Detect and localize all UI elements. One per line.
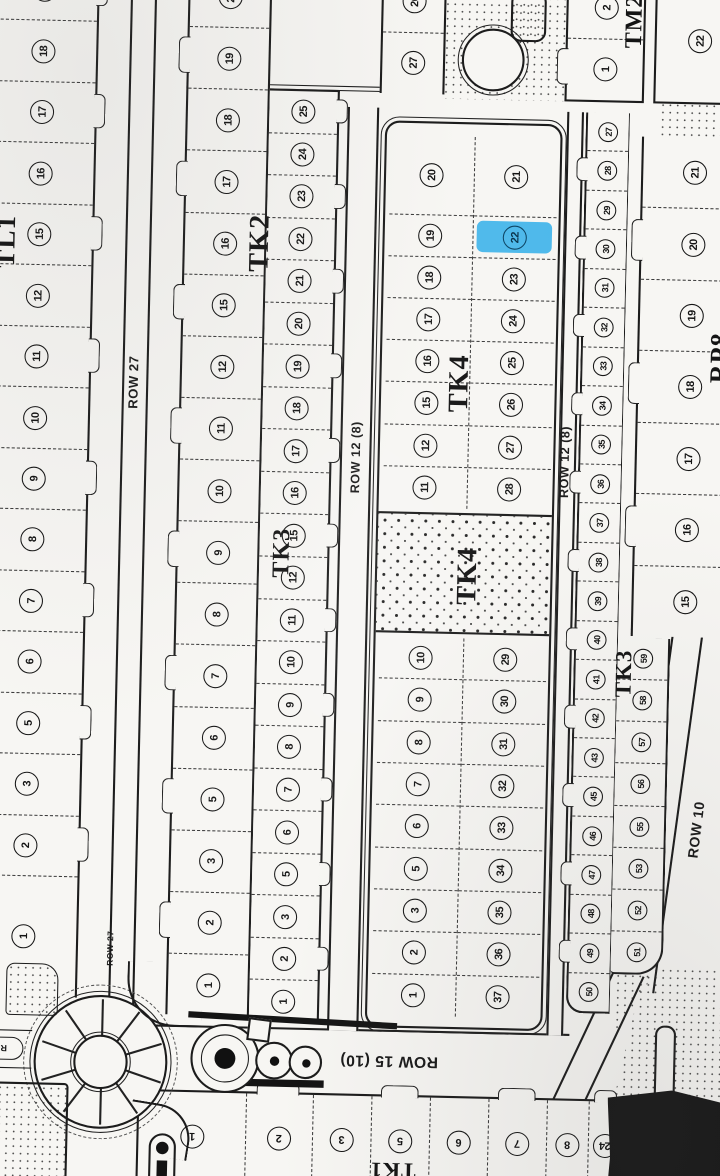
lot-cell[interactable]: 12 <box>0 263 91 327</box>
lot-number: 11 <box>412 475 437 500</box>
lot-number: 18 <box>284 396 309 421</box>
lot-number: 39 <box>587 591 607 611</box>
lot-cell[interactable]: 37 <box>578 502 620 542</box>
lot-number: 57 <box>631 732 651 752</box>
block-label-tm2: TM2 <box>620 0 648 49</box>
lot-number: 9 <box>278 693 303 718</box>
lot-number: 28 <box>597 161 617 181</box>
lot-number: 10 <box>207 479 232 504</box>
lot-cell[interactable]: 9 <box>177 520 258 584</box>
lot-cell[interactable]: 1 <box>371 973 455 1017</box>
lot-cell[interactable]: 21 <box>474 137 559 217</box>
lot-number: 19 <box>32 0 57 2</box>
tank-core <box>270 1056 280 1066</box>
lot-number: 45 <box>583 787 603 807</box>
lot-number: 29 <box>493 648 518 673</box>
tank-core <box>302 1059 311 1068</box>
lot-number: 17 <box>214 170 239 195</box>
screenshot-canvas: 191817161512111098765321 201918171615121… <box>0 0 720 1176</box>
lot-number: 3 <box>329 1127 354 1152</box>
lot-cell[interactable]: 17 <box>186 150 267 214</box>
lot-cell[interactable]: 20 <box>641 207 720 281</box>
lot-cell[interactable]: 7 <box>376 762 460 806</box>
lot-number: 6 <box>446 1130 471 1155</box>
lot-number: 37 <box>589 513 609 533</box>
lot-number: 19 <box>679 304 704 329</box>
lot-cell[interactable]: 5 <box>0 691 82 755</box>
tk4-bottom-right-column: 293031323334353637 <box>454 638 547 1018</box>
lot-cell[interactable]: 19 <box>263 344 332 388</box>
road-label-row15: ROW 15 (10) <box>340 1051 438 1071</box>
lot-number: 7 <box>203 664 228 689</box>
road-label-row10: ROW 10 <box>685 800 708 859</box>
lot-number: 16 <box>282 481 307 506</box>
lot-cell[interactable]: 7 <box>486 1099 546 1176</box>
lot-cell[interactable]: 3 <box>311 1095 371 1176</box>
lot-number: 9 <box>205 540 230 565</box>
lot-cell[interactable]: 3 <box>373 888 457 932</box>
block-label-tk2: TK2 <box>242 213 276 272</box>
lot-cell[interactable]: 32 <box>460 764 544 808</box>
block-label-tk3-east: TK3 <box>609 649 637 697</box>
lot-number: 33 <box>593 356 613 376</box>
lot-number: 19 <box>418 223 443 248</box>
lot-cell[interactable]: 19 <box>388 213 472 257</box>
lot-number: 1 <box>196 973 221 998</box>
lot-number: 36 <box>486 943 511 968</box>
lot-cell[interactable]: 25 <box>269 90 338 133</box>
lot-number: 2 <box>13 833 38 858</box>
lot-number: 7 <box>18 589 43 614</box>
lot-number: 19 <box>217 46 242 71</box>
lot-number: 15 <box>26 222 51 247</box>
lot-number: 16 <box>28 161 53 186</box>
lot-cell[interactable]: 53 <box>612 846 663 889</box>
scan-dark-edge <box>605 1089 720 1176</box>
lot-number: 10 <box>22 405 47 430</box>
lot-number: 26 <box>498 393 523 418</box>
row2-road-line <box>0 1029 32 1031</box>
lot-cell[interactable]: 3 <box>170 829 251 893</box>
lot-number: 32 <box>490 774 515 799</box>
tk4-bottom-left-column: 1098765321 <box>371 637 463 1017</box>
lot-cell[interactable]: 2 <box>0 813 79 877</box>
lot-number: 30 <box>492 690 517 715</box>
lot-number: 10 <box>409 646 434 671</box>
obelisk-mark <box>156 1160 167 1176</box>
lot-cell[interactable]: 27 <box>468 425 552 469</box>
lot-cell[interactable]: 15 <box>183 273 264 337</box>
block-label-tk3-west: TK3 <box>267 528 295 578</box>
lot-number: 30 <box>595 239 615 259</box>
lot-cell[interactable]: 21 <box>643 137 720 210</box>
lot-number: 36 <box>590 474 610 494</box>
lot-number: 8 <box>277 735 302 760</box>
lot-number: 8 <box>20 527 45 552</box>
lot-number: 40 <box>586 630 606 650</box>
block-label-tk4-reserve: TK4 <box>450 546 484 605</box>
lot-number: 17 <box>676 447 701 472</box>
lot-cell[interactable]: 27 <box>587 112 629 151</box>
lot-cell[interactable]: 35 <box>580 424 622 464</box>
lot-number: 27 <box>498 435 523 460</box>
lot-number: 20 <box>286 311 311 336</box>
lot-number: 23 <box>501 267 526 292</box>
lot-cell[interactable]: 10 <box>0 385 89 449</box>
lot-number: 33 <box>489 816 514 841</box>
lot-number: 55 <box>629 816 649 836</box>
lot-number: 3 <box>14 772 39 797</box>
lot-cell[interactable]: 43 <box>573 737 615 777</box>
lot-number: 18 <box>31 39 56 64</box>
road-label-row27: ROW 27 <box>126 355 142 409</box>
lot-cell[interactable]: 8 <box>255 725 324 769</box>
lot-number: 15 <box>414 391 439 416</box>
lot-cell[interactable]: 18 <box>388 255 472 299</box>
lot-cell[interactable]: 50 <box>568 972 610 1012</box>
road-label-row27-small: ROW 27 <box>105 930 115 965</box>
lot-number: 6 <box>275 820 300 845</box>
lot-number: 29 <box>596 200 616 220</box>
lot-cell[interactable]: 17 <box>0 80 96 144</box>
lot-cell[interactable]: 31 <box>461 722 545 766</box>
lot-cell[interactable]: 10 <box>179 458 260 522</box>
lot-cell[interactable]: 23 <box>267 174 336 218</box>
lot-cell[interactable]: 20 <box>264 301 333 345</box>
lot-number: 1 <box>401 983 426 1008</box>
lot-cell[interactable]: 30 <box>462 680 546 724</box>
lot-number: 37 <box>485 985 510 1010</box>
lot-cell[interactable]: 7 <box>174 644 255 708</box>
lot-number: 25 <box>499 351 524 376</box>
culdesac-island <box>510 0 547 42</box>
lot-cell[interactable]: 47 <box>570 854 612 894</box>
lot-cell[interactable]: 3 <box>0 752 80 816</box>
lot-cell[interactable]: 52 <box>611 888 662 931</box>
lot-cell[interactable]: 3 <box>251 894 320 938</box>
lot-cell[interactable]: 48 <box>570 894 612 934</box>
lot-cell[interactable]: 34 <box>458 848 542 892</box>
lot-cell[interactable]: 18 <box>0 19 97 83</box>
lot-number: 6 <box>17 650 42 675</box>
lot-number: 1 <box>11 924 36 949</box>
lot-cell[interactable]: 9 <box>378 678 462 722</box>
lot-number: 18 <box>417 265 442 290</box>
lot-number: 20 <box>681 232 706 257</box>
lot-cell[interactable]: 9 <box>256 683 325 727</box>
lot-number: 5 <box>15 711 40 736</box>
lot-number: 15 <box>211 293 236 318</box>
lot-cell[interactable]: 6 <box>253 810 322 854</box>
lot-number: 8 <box>204 602 229 627</box>
lot-number: 28 <box>497 477 522 502</box>
lot-number: 17 <box>416 307 441 332</box>
lot-cell[interactable]: 5 <box>172 767 253 831</box>
lot-number: 8 <box>407 730 432 755</box>
lot-number: 7 <box>406 772 431 797</box>
lot-cell[interactable]: 15 <box>633 564 720 638</box>
lot-cell[interactable]: 36 <box>456 932 540 976</box>
lot-cell[interactable]: 57 <box>615 721 666 764</box>
lot-cell[interactable]: 39 <box>577 581 619 621</box>
lot-cell[interactable]: 8 <box>545 1100 589 1176</box>
tank-structure-small-1 <box>255 1041 293 1079</box>
lot-number: 21 <box>287 269 312 294</box>
lot-cell[interactable]: 23 <box>472 257 556 301</box>
lot-number: 56 <box>630 774 650 794</box>
lot-number: 18 <box>215 108 240 133</box>
lot-cell[interactable]: 28 <box>586 150 628 190</box>
lot-cell[interactable]: 56 <box>614 762 665 805</box>
lot-cell[interactable]: 6 <box>428 1098 488 1176</box>
lot-cell[interactable]: 49 <box>569 933 611 973</box>
lot-cell[interactable]: 11 <box>383 465 467 509</box>
lot-number: 34 <box>488 858 513 883</box>
road-label-row2: ROW 2 <box>0 1042 7 1053</box>
lot-number: 2 <box>197 911 222 936</box>
lot-number: 22 <box>687 28 712 53</box>
lot-number: 7 <box>505 1131 530 1156</box>
lot-number: 24 <box>290 142 315 167</box>
block-label-tl1: TL1 <box>0 214 22 268</box>
lot-cell[interactable]: 16 <box>260 471 329 515</box>
tk4-top-left-column: 2019181716151211 <box>383 135 474 509</box>
lot-number: 32 <box>594 317 614 337</box>
lot-cell[interactable]: 6 <box>173 706 254 770</box>
lot-cell[interactable]: 2 <box>169 891 250 955</box>
lot-cell[interactable]: 17 <box>636 422 720 496</box>
lot-number: 3 <box>403 899 428 924</box>
lot-cell[interactable]: 35 <box>457 890 541 934</box>
lot-cell[interactable]: 26 <box>383 0 445 32</box>
lot-cell[interactable]: 22 <box>266 217 335 261</box>
lot-cell[interactable]: 32 <box>583 307 625 347</box>
lot-number: 9 <box>21 466 46 491</box>
lot-cell[interactable]: 7 <box>0 569 84 633</box>
lot-number: 53 <box>628 858 648 878</box>
lot-cell[interactable]: 17 <box>387 297 471 341</box>
lot-number: 51 <box>626 942 646 962</box>
lot-cell[interactable]: 29 <box>463 638 547 681</box>
lot-cell[interactable]: 20 <box>389 135 474 215</box>
lot-number: 2 <box>267 1126 292 1151</box>
lot-cell[interactable]: 33 <box>582 346 624 386</box>
lot-cell[interactable]: 12 <box>384 423 468 467</box>
lot-cell[interactable]: 8 <box>377 720 461 764</box>
lot-number: 11 <box>24 344 49 369</box>
row2-road-line <box>0 1066 31 1068</box>
lot-cell[interactable]: 51 <box>611 930 662 973</box>
lot-number: 12 <box>413 433 438 458</box>
lot-cell[interactable]: 33 <box>459 806 543 850</box>
lot-cell[interactable]: 5 <box>374 846 458 890</box>
lot-number: 6 <box>405 814 430 839</box>
lot-cell[interactable]: 37 <box>455 974 539 1018</box>
lot-cell[interactable]: 29 <box>586 190 628 230</box>
lot-cell[interactable]: 27 <box>382 31 444 95</box>
tk4-top-section: 2019181716151211 2122232425262728 <box>383 135 559 511</box>
lot-cell[interactable]: 26 <box>469 383 553 427</box>
lot-number: 49 <box>579 943 599 963</box>
lot-cell[interactable]: 6 <box>0 630 83 694</box>
lot-number: 5 <box>388 1129 413 1154</box>
lot-number: 15 <box>672 590 697 615</box>
lot-number: 24 <box>500 309 525 334</box>
road-label-row12-right: ROW 12 (8) <box>556 426 572 498</box>
lot-cell[interactable]: 24 <box>471 299 555 343</box>
lot-cell[interactable]: 17 <box>261 428 330 472</box>
lot-number: 43 <box>584 747 604 767</box>
lot-number: 2 <box>402 941 427 966</box>
plat-map: 191817161512111098765321 201918171615121… <box>0 0 720 1176</box>
lot-number: 16 <box>415 349 440 374</box>
lot-number: 23 <box>289 184 314 209</box>
lot-cell[interactable]: 25 <box>470 341 554 385</box>
lot-number: 11 <box>208 417 233 442</box>
verge-stipple-a <box>5 963 58 1016</box>
tank-structure-small-2 <box>288 1045 322 1079</box>
block-label-tk4-top: TK4 <box>442 354 476 413</box>
lot-cell[interactable]: 6 <box>375 804 459 848</box>
verge-stipple-b <box>0 1081 69 1176</box>
lot-cell[interactable]: 31 <box>584 268 626 308</box>
road-label-row12-left: ROW 12 (8) <box>348 421 364 493</box>
lot-cell-highlighted[interactable]: 22 <box>473 215 557 259</box>
block-label-tk1: TK1 <box>370 1156 416 1176</box>
lot-number: 7 <box>276 777 301 802</box>
rp8-lot-column: 21201918171615 <box>631 137 720 639</box>
lot-number: 17 <box>29 100 54 125</box>
lot-number: 31 <box>594 278 614 298</box>
lot-number: 41 <box>586 669 606 689</box>
lot-cell[interactable]: 28 <box>467 467 551 511</box>
top-mini-lot-column: 2627 <box>380 0 448 94</box>
lot-number: 50 <box>578 982 598 1002</box>
lot-cell[interactable]: 55 <box>613 804 664 847</box>
lot-number: 1 <box>593 57 618 82</box>
lot-cell[interactable]: 11 <box>180 397 261 461</box>
lot-cell[interactable]: 11 <box>257 598 326 642</box>
lot-number: 5 <box>274 862 299 887</box>
lot-cell[interactable]: 16 <box>634 493 720 567</box>
lot-number: 2 <box>594 0 619 20</box>
lot-number: 52 <box>627 900 647 920</box>
lot-number: 1 <box>271 989 296 1014</box>
lot-cell[interactable]: 19 <box>188 26 269 90</box>
lot-cell[interactable]: 38 <box>578 542 620 582</box>
lot-cell[interactable]: 5 <box>252 852 321 896</box>
lot-cell[interactable]: 22 <box>655 0 720 103</box>
lot-number: 3 <box>198 849 223 874</box>
lot-cell[interactable]: 16 <box>0 141 94 205</box>
lot-cell[interactable]: 7 <box>254 767 323 811</box>
lot-cell[interactable]: 9 <box>0 446 87 510</box>
lot-number: 34 <box>592 395 612 415</box>
lot-cell[interactable]: 2 <box>250 937 319 981</box>
lot-cell[interactable]: 2 <box>244 1093 313 1176</box>
lot-cell[interactable]: 10 <box>379 637 463 680</box>
lot-cell[interactable]: 30 <box>585 229 627 269</box>
lot-cell[interactable]: 46 <box>571 815 613 855</box>
lot-number: 25 <box>291 100 316 125</box>
lot-number: 8 <box>555 1132 580 1157</box>
lot-cell[interactable]: 10 <box>256 640 325 684</box>
lot-number: 10 <box>279 650 304 675</box>
lot-cell[interactable]: 12 <box>181 335 262 399</box>
lot-number: 6 <box>201 726 226 751</box>
lot-number: 18 <box>677 375 702 400</box>
lot-cell[interactable]: 45 <box>572 776 614 816</box>
lot-cell[interactable]: 24 <box>268 132 337 176</box>
lot-number: 38 <box>588 552 608 572</box>
lot-number: 12 <box>25 283 50 308</box>
lot-cell[interactable]: 18 <box>262 386 331 430</box>
lot-cell[interactable]: 18 <box>187 88 268 152</box>
lot-number: 35 <box>487 900 512 925</box>
lot-number: 11 <box>280 608 305 633</box>
lot-number: 35 <box>591 435 611 455</box>
lot-number: 16 <box>212 231 237 256</box>
lot-number: 3 <box>273 904 298 929</box>
lot-number: 22 <box>288 227 313 252</box>
tl1-lot-column: 191817161512111098765321 <box>0 0 100 998</box>
lot-cell[interactable]: 21 <box>265 259 334 303</box>
lot-number: 5 <box>200 787 225 812</box>
lot-22-parcel: 22 <box>653 0 720 105</box>
lot-cell[interactable]: 11 <box>0 324 90 388</box>
lot-cell[interactable]: 42 <box>574 698 616 738</box>
lot-number: 27 <box>598 122 618 142</box>
lot-cell[interactable]: 20 <box>190 0 271 28</box>
lot-number: 19 <box>285 354 310 379</box>
lot-number: 46 <box>582 826 602 846</box>
lot-number: 12 <box>210 355 235 380</box>
lot-cell[interactable]: 8 <box>0 507 86 571</box>
lot-cell[interactable]: 2 <box>372 930 456 974</box>
lot-number: 17 <box>283 439 308 464</box>
lot-cell[interactable]: 19 <box>0 0 98 21</box>
lot-number: 42 <box>585 708 605 728</box>
lot-number: 48 <box>580 904 600 924</box>
lot-number: 21 <box>682 161 707 186</box>
lot-number: 22 <box>502 225 527 250</box>
lot-cell[interactable]: 34 <box>581 385 623 425</box>
lot-number: 21 <box>504 165 529 190</box>
tk4-top-right-column: 2122232425262728 <box>466 137 559 511</box>
block-label-rp8: RP8 <box>705 332 720 384</box>
lot-number: 20 <box>218 0 243 9</box>
lot-number: 5 <box>404 856 429 881</box>
lot-number: 20 <box>420 163 445 188</box>
lot-number: 26 <box>402 0 427 13</box>
lot-cell[interactable]: 36 <box>579 463 621 503</box>
lot-number: 9 <box>408 688 433 713</box>
lot-number: 2 <box>272 947 297 972</box>
tk4-bottom-section: 1098765321 293031323334353637 <box>371 637 547 1019</box>
road-row27 <box>108 0 158 1022</box>
lot-number: 47 <box>581 865 601 885</box>
lot-number: 16 <box>674 518 699 543</box>
lot-number: 1 <box>180 1124 205 1149</box>
lot-cell[interactable]: 8 <box>176 582 257 646</box>
lot-number: 31 <box>491 732 516 757</box>
lot-number: 27 <box>400 51 425 76</box>
utility-square <box>246 1017 272 1043</box>
